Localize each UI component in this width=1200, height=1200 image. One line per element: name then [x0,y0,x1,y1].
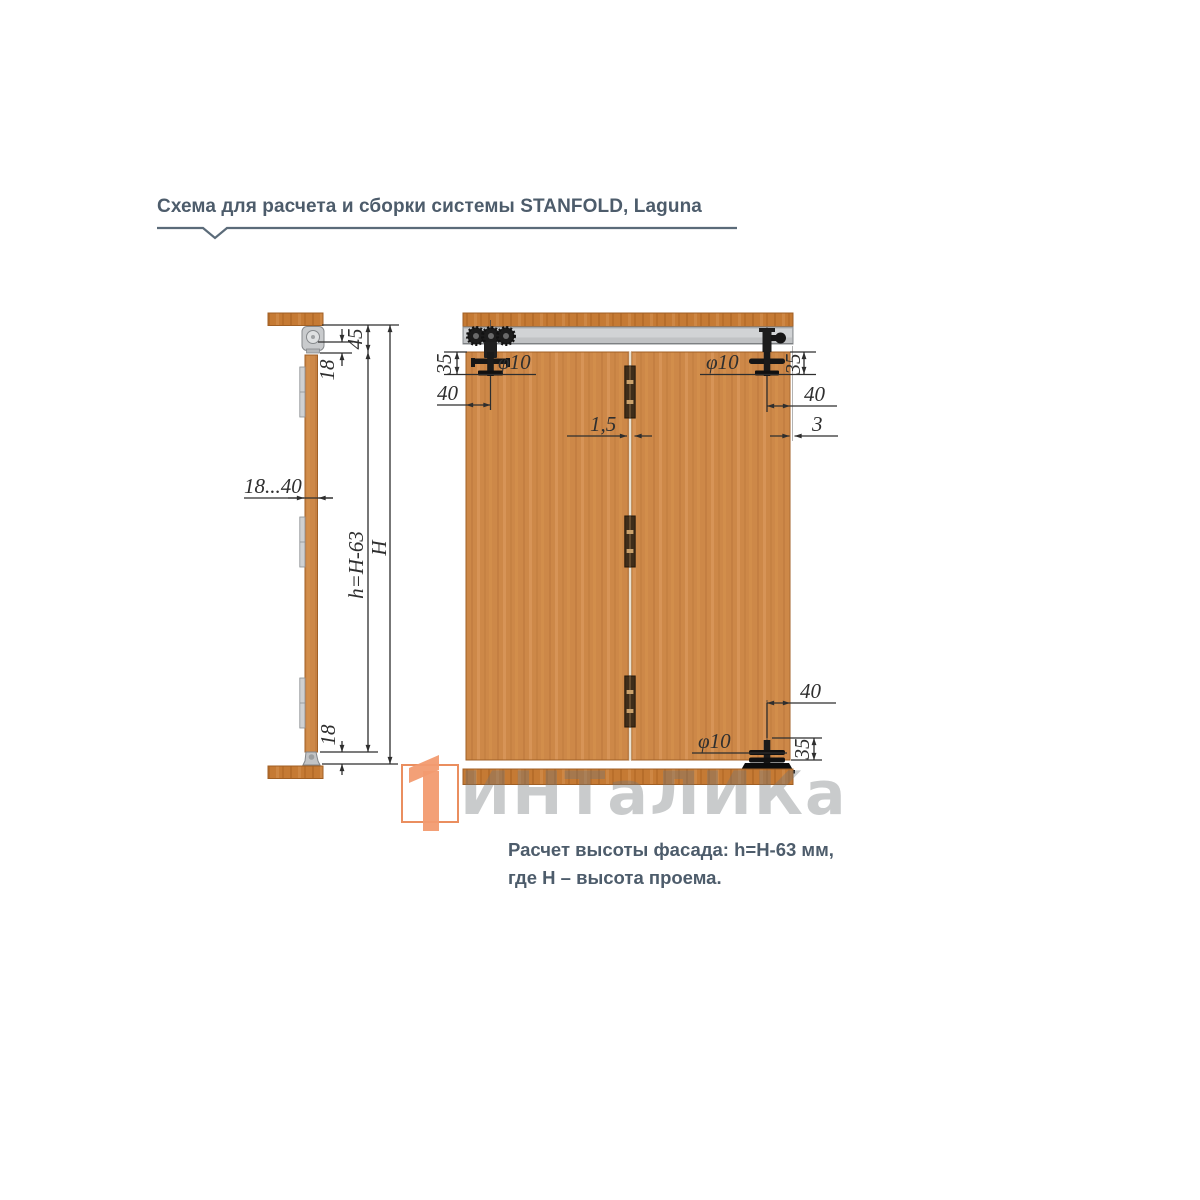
document-page: Схема для расчета и сборки системы STANF… [0,0,1200,1200]
side-roller-carriage [302,327,324,354]
dim-label-opening-height: H [367,539,391,557]
caption: Расчет высоты фасада: h=H-63 мм, где H –… [508,836,834,892]
side-bottom-board [268,766,323,779]
dim-label-pin-to-top: 18 [315,359,339,381]
dim-label-b-hole-inset: 40 [800,679,822,703]
dim-label-tr-hole-inset: 40 [804,382,826,406]
caption-line2: где H – высота проема. [508,864,834,892]
side-bottom-pivot [303,752,320,765]
dim-label-top-gap: 45 [343,329,367,350]
dim-label-tl-hole-dia: φ10 [498,350,531,374]
assembly-diagram: 45 18 18...40 h=H-63 H 18 [0,0,1200,1200]
dim-label-tl-hole-inset: 40 [437,381,459,405]
watermark: ИНТаЛИКа [398,752,858,847]
side-door-panel [305,355,318,752]
side-hinges [300,367,305,728]
watermark-text: ИНТаЛИКа [460,764,847,824]
front-right-door [631,352,790,760]
title-underline [157,228,737,238]
dim-label-side-clearance: 3 [811,412,823,436]
dim-label-panel-gap: 1,5 [590,412,616,436]
front-top-rail [463,313,793,327]
caption-line1: Расчет высоты фасада: h=H-63 мм, [508,836,834,864]
side-view: 45 18 18...40 h=H-63 H 18 [244,313,399,779]
dim-label-facade-height: h=H-63 [344,531,368,599]
dim-label-tr-hole-dia: φ10 [706,350,739,374]
front-view: 35 φ10 40 1,5 φ10 35 40 3 40 φ10 35 [432,313,838,785]
dim-label-tr-hole-depth: 35 [781,354,805,376]
dim-label-b-hole-dia: φ10 [698,729,731,753]
dim-label-bottom-gap: 18 [316,724,340,746]
side-top-board [268,313,323,326]
dim-label-door-thickness: 18...40 [244,474,302,498]
dim-label-tl-hole-depth: 35 [432,354,456,376]
